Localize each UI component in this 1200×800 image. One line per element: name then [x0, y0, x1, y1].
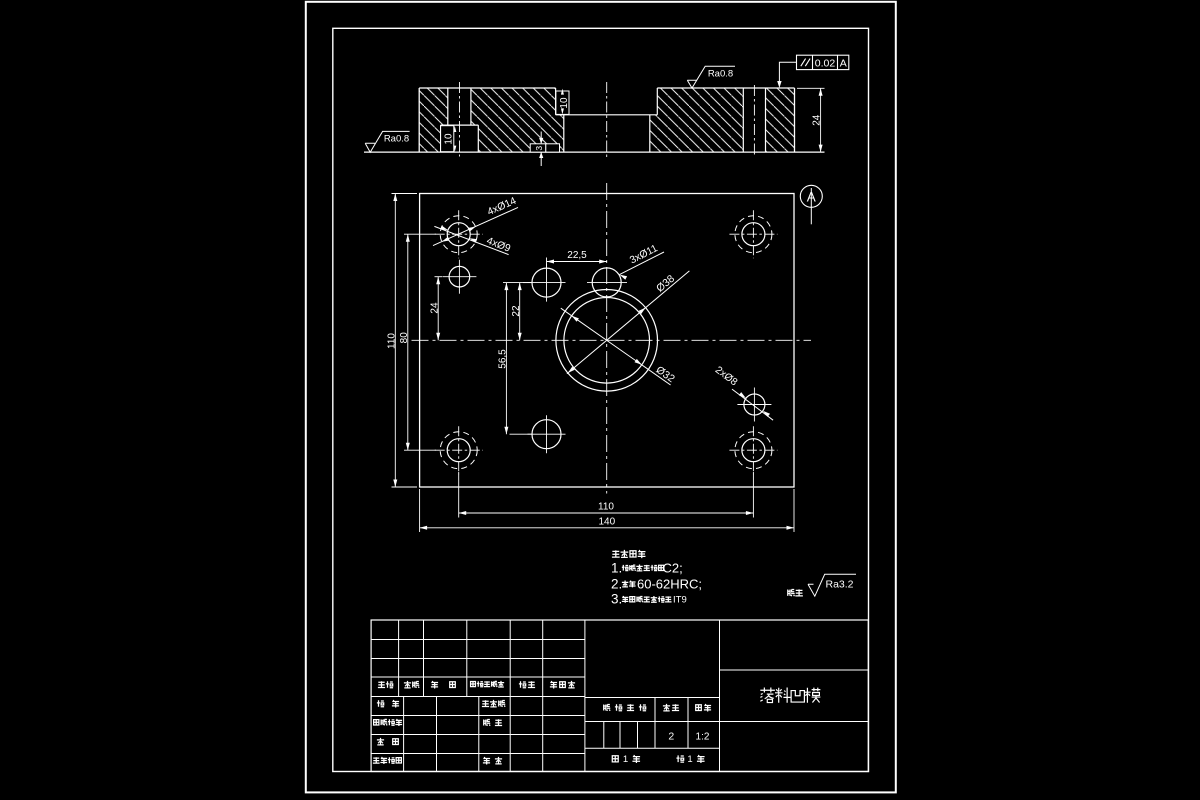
svg-text:56,5: 56,5 [498, 349, 509, 369]
svg-text:2: 2 [668, 731, 674, 743]
svg-text:1: 1 [687, 754, 692, 765]
svg-text:0.02: 0.02 [815, 57, 836, 69]
svg-text:10: 10 [444, 133, 455, 145]
svg-text:C2;: C2; [663, 561, 683, 576]
svg-text:1: 1 [623, 754, 628, 765]
svg-text:24: 24 [429, 302, 440, 314]
svg-text:10: 10 [559, 97, 570, 109]
svg-text:3: 3 [534, 146, 544, 151]
svg-text:Ra3.2: Ra3.2 [825, 579, 853, 591]
svg-text:Ra0.8: Ra0.8 [384, 134, 409, 145]
svg-text:A: A [807, 190, 816, 205]
svg-text:Ra0.8: Ra0.8 [708, 69, 733, 80]
svg-text:60-62HRC;: 60-62HRC; [637, 577, 702, 592]
svg-text:24: 24 [812, 114, 823, 126]
svg-text:110: 110 [598, 502, 614, 513]
svg-text:1.: 1. [611, 561, 622, 576]
svg-text:A: A [840, 57, 847, 69]
svg-text:3.: 3. [611, 592, 622, 607]
svg-text:80: 80 [399, 332, 410, 344]
svg-text:110: 110 [387, 333, 398, 349]
svg-text:140: 140 [598, 517, 615, 528]
svg-text:IT9: IT9 [673, 595, 687, 606]
svg-text:1:2: 1:2 [696, 732, 710, 743]
svg-text:2.: 2. [611, 577, 622, 592]
svg-text:22: 22 [511, 305, 522, 317]
svg-text:22,5: 22,5 [567, 250, 587, 261]
